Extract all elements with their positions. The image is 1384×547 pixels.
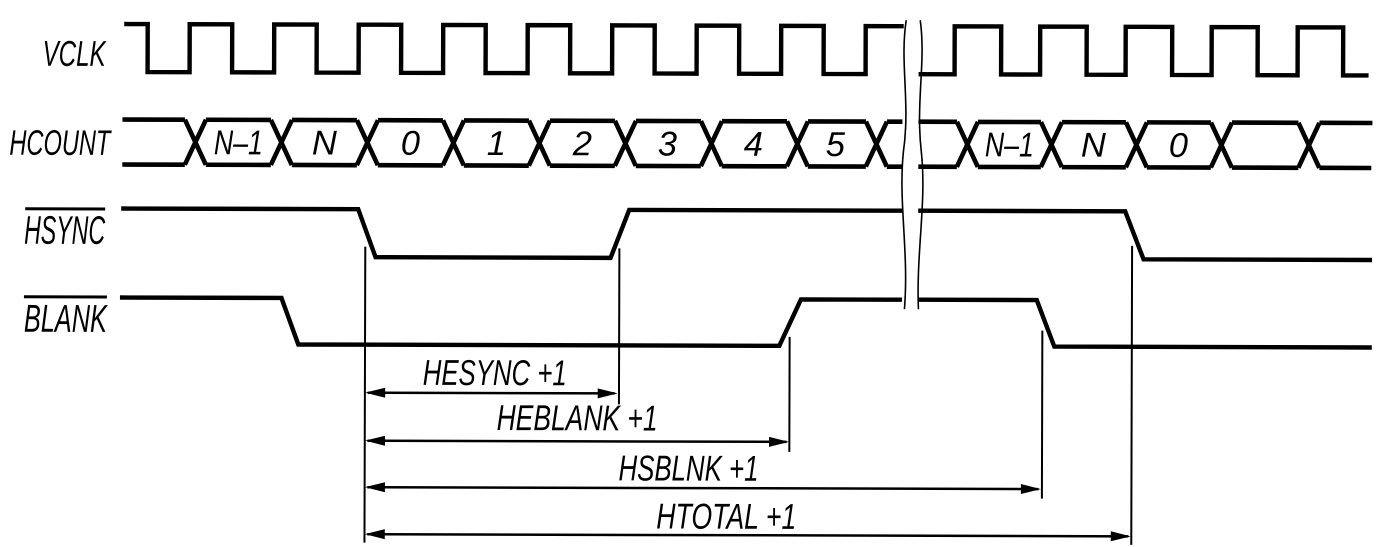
svg-text:N–1: N–1 bbox=[985, 126, 1034, 164]
svg-text:2: 2 bbox=[572, 125, 592, 163]
svg-text:HSBLNK +1: HSBLNK +1 bbox=[618, 447, 758, 488]
svg-text:BLANK: BLANK bbox=[24, 298, 108, 341]
svg-text:1: 1 bbox=[487, 125, 506, 163]
svg-text:N: N bbox=[1081, 127, 1106, 165]
svg-text:HESYNC +1: HESYNC +1 bbox=[423, 352, 567, 393]
svg-text:VCLK: VCLK bbox=[43, 33, 107, 74]
svg-text:0: 0 bbox=[1169, 127, 1188, 165]
svg-text:0: 0 bbox=[401, 125, 420, 163]
svg-text:3: 3 bbox=[658, 126, 677, 164]
svg-text:HTOTAL +1: HTOTAL +1 bbox=[656, 495, 796, 536]
svg-text:HSYNC: HSYNC bbox=[24, 209, 106, 253]
svg-text:HCOUNT: HCOUNT bbox=[9, 123, 112, 163]
svg-text:5: 5 bbox=[826, 126, 846, 164]
svg-text:4: 4 bbox=[744, 126, 763, 164]
svg-text:N–1: N–1 bbox=[214, 124, 263, 162]
svg-text:N: N bbox=[312, 125, 337, 163]
svg-text:HEBLANK +1: HEBLANK +1 bbox=[497, 397, 658, 438]
